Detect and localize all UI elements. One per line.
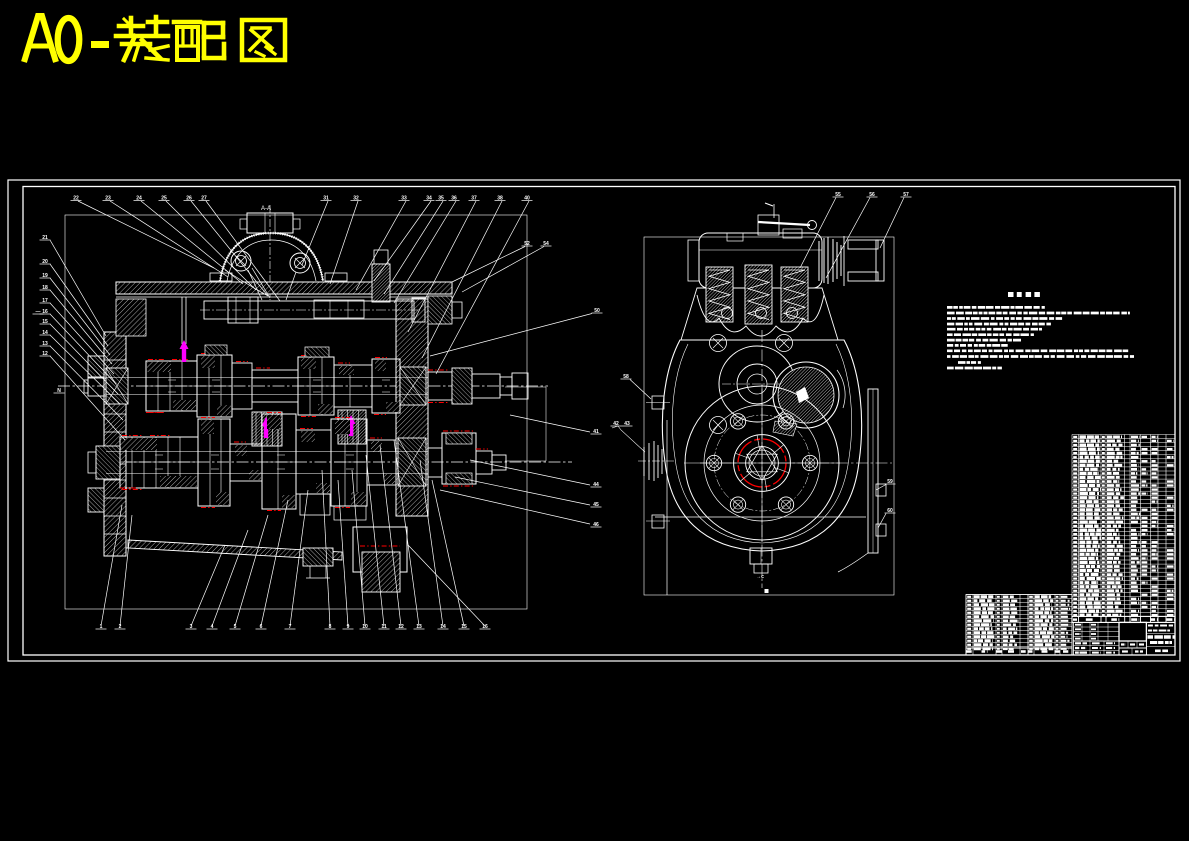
svg-text:A-A: A-A [261,206,271,212]
svg-text:→c: →c [756,574,764,580]
